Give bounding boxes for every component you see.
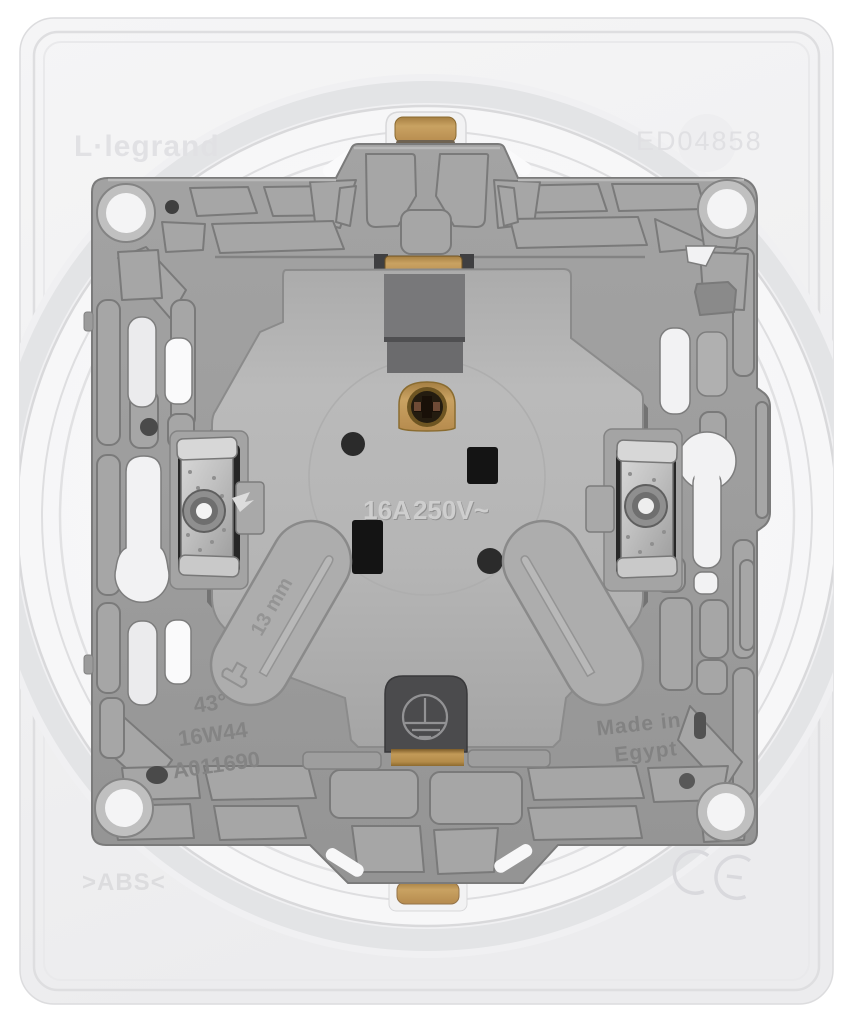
svg-text:L·legrand: L·legrand [74, 130, 220, 163]
svg-text:ED04858: ED04858 [636, 126, 763, 156]
svg-text:>ABS<: >ABS< [82, 869, 166, 896]
svg-text:16A 250V~: 16A 250V~ [363, 495, 489, 525]
